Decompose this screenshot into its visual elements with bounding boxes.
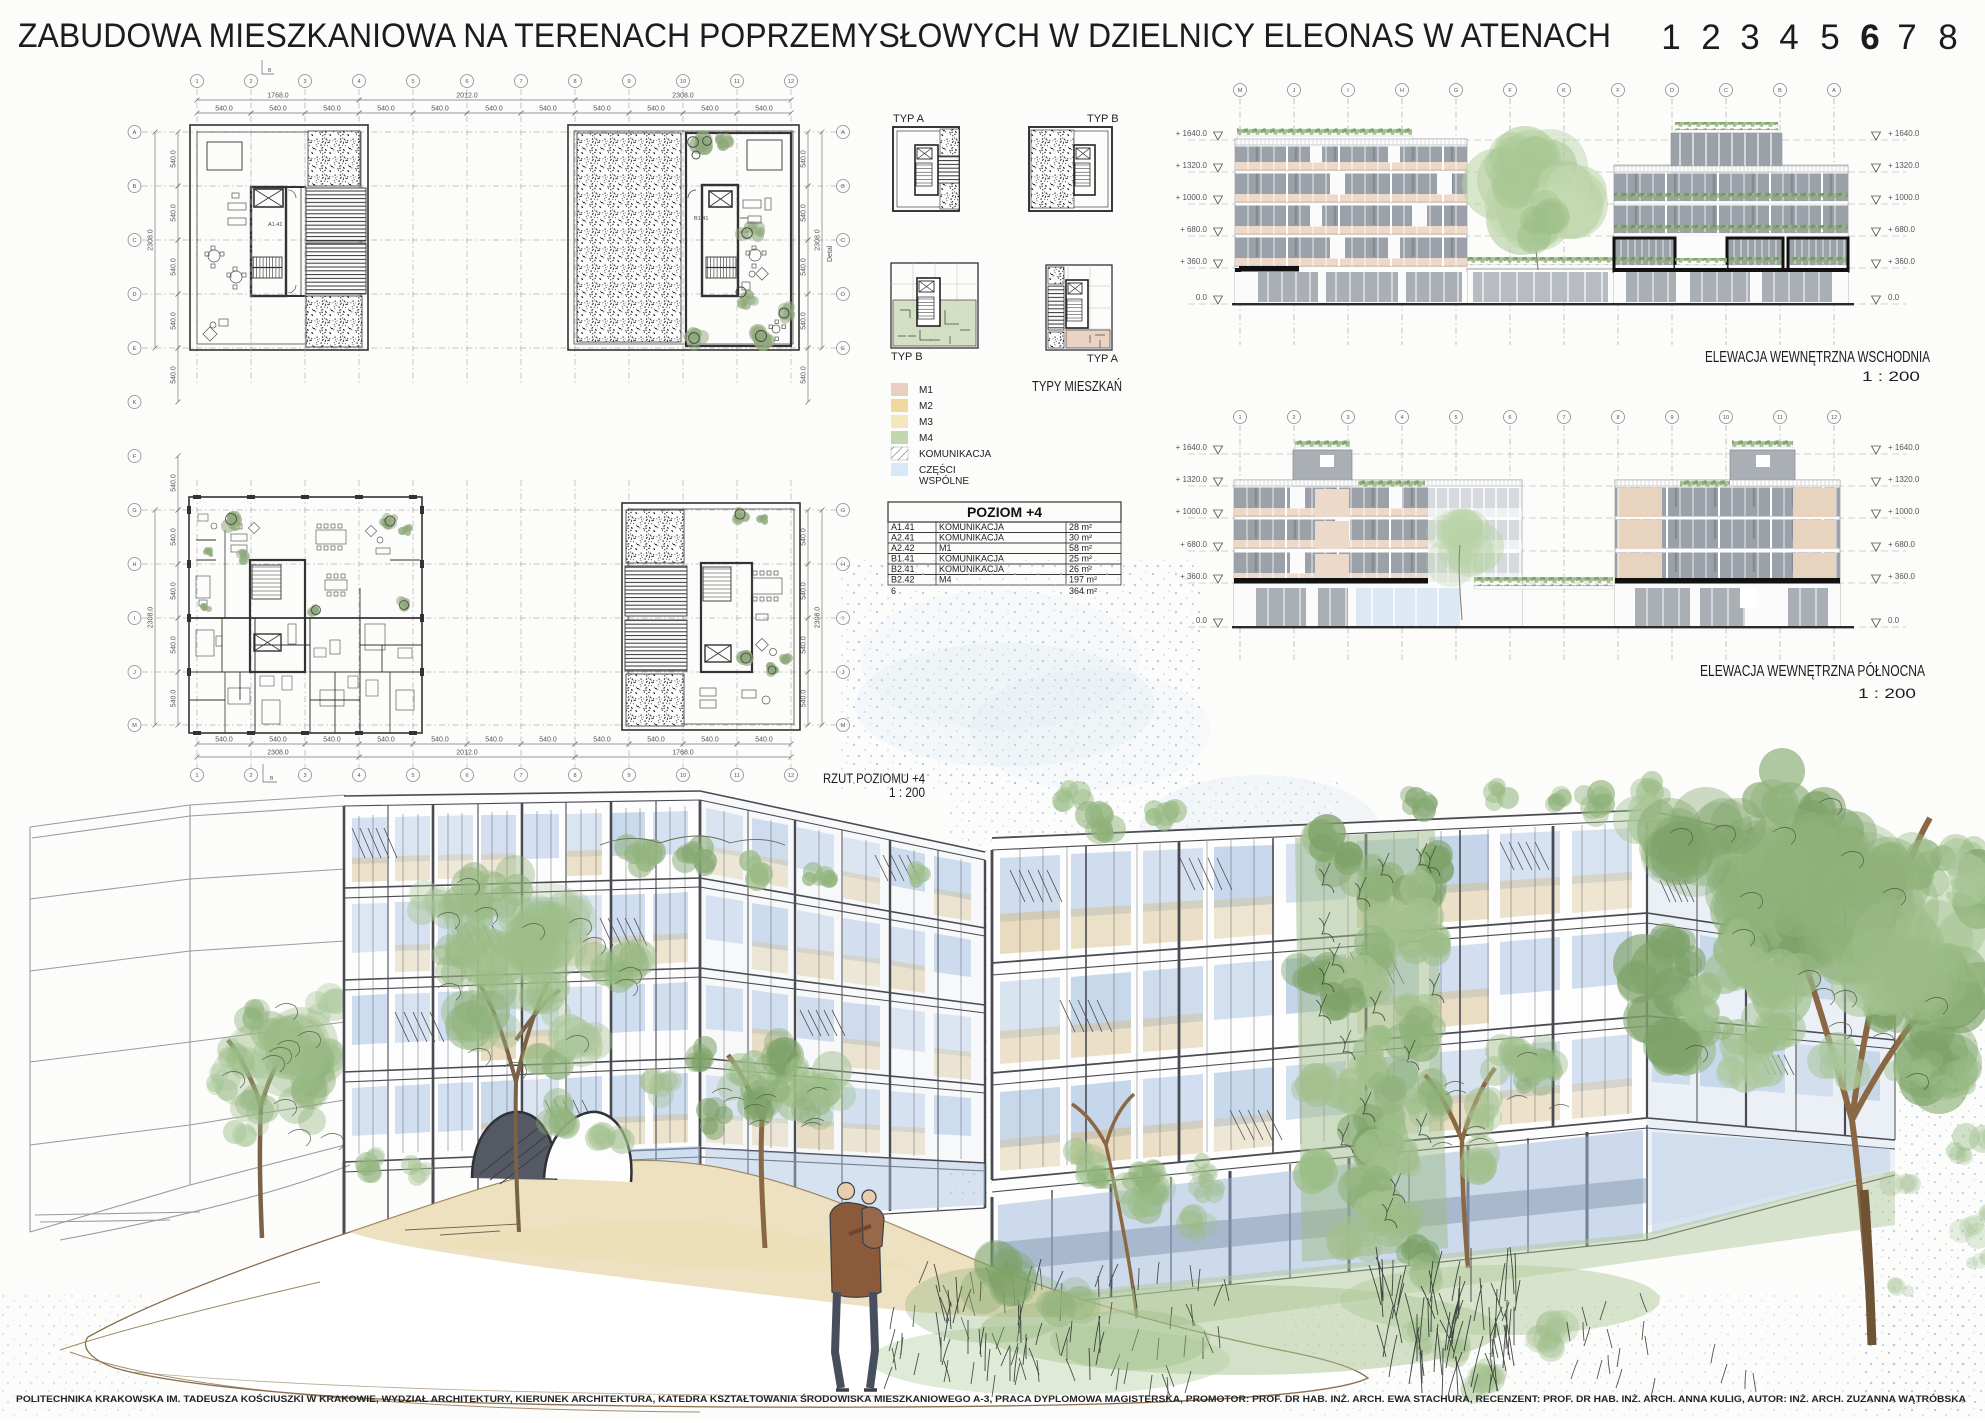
svg-text:540.0: 540.0	[171, 258, 178, 276]
svg-text:WSPÓLNE: WSPÓLNE	[919, 474, 969, 487]
svg-text:6: 6	[465, 773, 468, 779]
svg-text:1: 1	[195, 773, 198, 779]
svg-text:+ 360.0: + 360.0	[1888, 572, 1915, 581]
svg-text:K: K	[133, 400, 137, 406]
svg-text:A: A	[133, 130, 137, 136]
svg-text:540.0: 540.0	[801, 150, 808, 168]
svg-text:540.0: 540.0	[171, 636, 178, 654]
svg-text:C: C	[1724, 88, 1728, 94]
svg-text:2308.0: 2308.0	[815, 229, 822, 251]
svg-text:A2.41: A2.41	[891, 533, 915, 543]
svg-text:12: 12	[1831, 415, 1837, 421]
svg-text:0.0: 0.0	[1888, 293, 1900, 302]
svg-text:540.0: 540.0	[171, 366, 178, 384]
svg-text:7: 7	[1562, 415, 1565, 421]
svg-text:540.0: 540.0	[801, 636, 808, 654]
svg-text:4: 4	[357, 79, 360, 85]
svg-text:540.0: 540.0	[171, 204, 178, 222]
svg-text:2012.0: 2012.0	[456, 750, 478, 757]
svg-text:C: C	[841, 238, 845, 244]
svg-text:540.0: 540.0	[539, 106, 557, 113]
svg-text:+ 360.0: + 360.0	[1180, 257, 1207, 266]
svg-text:540.0: 540.0	[647, 737, 665, 744]
svg-text:3: 3	[1346, 415, 1349, 421]
svg-text:M2: M2	[919, 401, 933, 412]
svg-text:9: 9	[627, 79, 630, 85]
svg-text:KOMUNIKACJA: KOMUNIKACJA	[919, 449, 992, 460]
svg-text:10: 10	[1723, 415, 1729, 421]
svg-text:+ 1640.0: + 1640.0	[1888, 129, 1920, 138]
svg-text:G: G	[1454, 88, 1458, 94]
svg-text:2308.0: 2308.0	[148, 229, 155, 251]
svg-text:540.0: 540.0	[801, 690, 808, 708]
svg-text:540.0: 540.0	[171, 528, 178, 546]
svg-text:540.0: 540.0	[755, 737, 773, 744]
svg-text:ZABUDOWA MIESZKANIOWA NA TEREN: ZABUDOWA MIESZKANIOWA NA TERENACH POPRZE…	[18, 17, 1611, 55]
svg-text:M3: M3	[919, 417, 933, 428]
svg-text:G: G	[132, 508, 136, 514]
svg-text:7: 7	[1897, 18, 1916, 57]
svg-text:+ 1000.0: + 1000.0	[1888, 507, 1920, 516]
svg-text:11: 11	[734, 773, 740, 779]
svg-text:8: 8	[1616, 415, 1619, 421]
svg-text:11: 11	[734, 79, 740, 85]
svg-text:12: 12	[788, 773, 794, 779]
svg-text:540.0: 540.0	[801, 312, 808, 330]
svg-text:540.0: 540.0	[323, 106, 341, 113]
svg-text:540.0: 540.0	[539, 737, 557, 744]
svg-text:ELEWACJA WEWNĘTRZNA PÓŁNOCNA: ELEWACJA WEWNĘTRZNA PÓŁNOCNA	[1700, 661, 1925, 680]
svg-text:TYP A: TYP A	[1087, 353, 1119, 365]
svg-text:+ 1000.0: + 1000.0	[1176, 193, 1208, 202]
svg-text:3: 3	[303, 773, 306, 779]
svg-text:540.0: 540.0	[593, 106, 611, 113]
svg-text:TYPY MIESZKAŃ: TYPY MIESZKAŃ	[1032, 378, 1122, 395]
svg-text:C: C	[133, 238, 137, 244]
svg-text:1: 1	[1238, 415, 1241, 421]
svg-text:540.0: 540.0	[377, 106, 395, 113]
svg-text:4: 4	[357, 773, 360, 779]
svg-text:2308.0: 2308.0	[672, 93, 694, 100]
svg-text:+ 1640.0: + 1640.0	[1176, 443, 1208, 452]
svg-text:1: 1	[1661, 18, 1680, 57]
svg-text:A: A	[1832, 88, 1836, 94]
svg-text:H: H	[1400, 88, 1404, 94]
svg-text:G: G	[841, 508, 845, 514]
svg-text:2: 2	[249, 79, 252, 85]
svg-text:540.0: 540.0	[215, 106, 233, 113]
svg-text:2308.0: 2308.0	[267, 750, 289, 757]
svg-text:POZIOM +4: POZIOM +4	[967, 504, 1042, 520]
svg-text:7: 7	[519, 773, 522, 779]
svg-text:30 m²: 30 m²	[1069, 533, 1092, 543]
svg-text:K: K	[1562, 88, 1566, 94]
svg-text:540.0: 540.0	[485, 737, 503, 744]
svg-text:ELEWACJA WEWNĘTRZNA WSCHODNIA: ELEWACJA WEWNĘTRZNA WSCHODNIA	[1705, 349, 1930, 366]
svg-text:B1.41: B1.41	[694, 216, 708, 222]
svg-text:KOMUNIKACJA: KOMUNIKACJA	[939, 522, 1004, 532]
svg-text:540.0: 540.0	[755, 106, 773, 113]
svg-text:540.0: 540.0	[171, 474, 178, 492]
svg-text:+ 1320.0: + 1320.0	[1888, 475, 1920, 484]
svg-text:M1: M1	[919, 385, 933, 396]
svg-text:A: A	[841, 130, 845, 136]
svg-text:M1: M1	[939, 543, 952, 553]
svg-text:540.0: 540.0	[171, 312, 178, 330]
svg-text:540.0: 540.0	[593, 737, 611, 744]
svg-text:M: M	[132, 723, 137, 729]
svg-text:CZĘŚCI: CZĘŚCI	[919, 463, 956, 476]
svg-text:B: B	[133, 184, 137, 190]
svg-text:M4: M4	[919, 433, 933, 444]
svg-text:3: 3	[1740, 18, 1759, 57]
svg-text:540.0: 540.0	[269, 106, 287, 113]
svg-text:+ 1320.0: + 1320.0	[1176, 475, 1208, 484]
svg-text:28 m²: 28 m²	[1069, 522, 1092, 532]
svg-text:J: J	[133, 670, 136, 676]
svg-text:5: 5	[1820, 18, 1839, 57]
svg-text:11: 11	[1777, 415, 1783, 421]
svg-text:E: E	[133, 346, 137, 352]
svg-text:KOMUNIKACJA: KOMUNIKACJA	[939, 533, 1004, 543]
svg-text:+ 680.0: + 680.0	[1180, 225, 1207, 234]
svg-text:8: 8	[573, 773, 576, 779]
svg-text:D: D	[133, 292, 137, 298]
svg-text:0.0: 0.0	[1196, 293, 1208, 302]
svg-text:2012.0: 2012.0	[456, 93, 478, 100]
svg-text:2: 2	[249, 773, 252, 779]
svg-text:E: E	[841, 346, 845, 352]
svg-text:1768.0: 1768.0	[267, 93, 289, 100]
svg-text:540.0: 540.0	[801, 204, 808, 222]
svg-text:A2.42: A2.42	[891, 543, 915, 553]
svg-text:2308.0: 2308.0	[148, 607, 155, 629]
svg-text:A1.41: A1.41	[891, 522, 915, 532]
svg-text:+ 1000.0: + 1000.0	[1176, 507, 1208, 516]
svg-text:12: 12	[788, 79, 794, 85]
svg-text:540.0: 540.0	[269, 737, 287, 744]
svg-text:+ 360.0: + 360.0	[1888, 257, 1915, 266]
svg-text:J: J	[1293, 88, 1296, 94]
svg-text:540.0: 540.0	[171, 150, 178, 168]
svg-text:D: D	[1670, 88, 1674, 94]
svg-text:D: D	[841, 292, 845, 298]
svg-text:5: 5	[1454, 415, 1457, 421]
svg-text:540.0: 540.0	[171, 582, 178, 600]
svg-text:8: 8	[1938, 18, 1957, 57]
svg-text:0.0: 0.0	[1888, 616, 1900, 625]
svg-text:+ 680.0: + 680.0	[1888, 540, 1915, 549]
svg-text:540.0: 540.0	[377, 737, 395, 744]
svg-text:540.0: 540.0	[171, 690, 178, 708]
svg-text:540.0: 540.0	[431, 737, 449, 744]
svg-text:B: B	[841, 184, 845, 190]
svg-text:Detal: Detal	[827, 245, 834, 262]
svg-text:TYP A: TYP A	[893, 113, 925, 125]
svg-text:6: 6	[465, 79, 468, 85]
svg-text:540.0: 540.0	[801, 258, 808, 276]
svg-text:540.0: 540.0	[701, 106, 719, 113]
svg-text:1: 1	[195, 79, 198, 85]
svg-text:540.0: 540.0	[323, 737, 341, 744]
svg-text:5: 5	[411, 773, 414, 779]
svg-text:540.0: 540.0	[801, 528, 808, 546]
svg-text:9: 9	[627, 773, 630, 779]
svg-text:+ 1640.0: + 1640.0	[1176, 129, 1208, 138]
svg-text:540.0: 540.0	[485, 106, 503, 113]
svg-text:+ 1640.0: + 1640.0	[1888, 443, 1920, 452]
svg-text:540.0: 540.0	[431, 106, 449, 113]
svg-text:5: 5	[411, 79, 414, 85]
svg-text:540.0: 540.0	[701, 737, 719, 744]
svg-text:+ 1320.0: + 1320.0	[1888, 161, 1920, 170]
svg-text:TYP B: TYP B	[891, 351, 923, 363]
svg-text:+ 680.0: + 680.0	[1180, 540, 1207, 549]
svg-text:TYP B: TYP B	[1087, 113, 1119, 125]
svg-text:540.0: 540.0	[801, 366, 808, 384]
svg-text:2: 2	[1292, 415, 1295, 421]
svg-text:POLITECHNIKA KRAKOWSKA IM. TAD: POLITECHNIKA KRAKOWSKA IM. TADEUSZA KOŚC…	[16, 1393, 1967, 1404]
svg-text:1768.0: 1768.0	[672, 750, 694, 757]
svg-text:+ 1320.0: + 1320.0	[1176, 161, 1208, 170]
svg-text:2: 2	[1701, 18, 1720, 57]
svg-text:2308.0: 2308.0	[815, 607, 822, 629]
svg-text:B: B	[1778, 88, 1782, 94]
svg-text:540.0: 540.0	[215, 737, 233, 744]
svg-text:540.0: 540.0	[801, 582, 808, 600]
svg-text:A1.41: A1.41	[268, 222, 282, 228]
svg-text:1 : 200: 1 : 200	[1858, 685, 1916, 701]
svg-text:H: H	[133, 562, 137, 568]
svg-text:8: 8	[573, 79, 576, 85]
svg-text:10: 10	[680, 79, 686, 85]
svg-text:6: 6	[1860, 18, 1879, 57]
svg-text:+ 680.0: + 680.0	[1888, 225, 1915, 234]
svg-text:58 m²: 58 m²	[1069, 543, 1092, 553]
svg-text:1 : 200: 1 : 200	[1862, 368, 1920, 384]
svg-text:6: 6	[1508, 415, 1511, 421]
svg-text:+ 1000.0: + 1000.0	[1888, 193, 1920, 202]
svg-text:M: M	[1238, 88, 1243, 94]
svg-text:7: 7	[519, 79, 522, 85]
svg-text:3: 3	[303, 79, 306, 85]
svg-text:4: 4	[1779, 18, 1798, 57]
svg-text:10: 10	[680, 773, 686, 779]
svg-text:540.0: 540.0	[647, 106, 665, 113]
svg-text:9: 9	[1670, 415, 1673, 421]
svg-text:4: 4	[1400, 415, 1403, 421]
